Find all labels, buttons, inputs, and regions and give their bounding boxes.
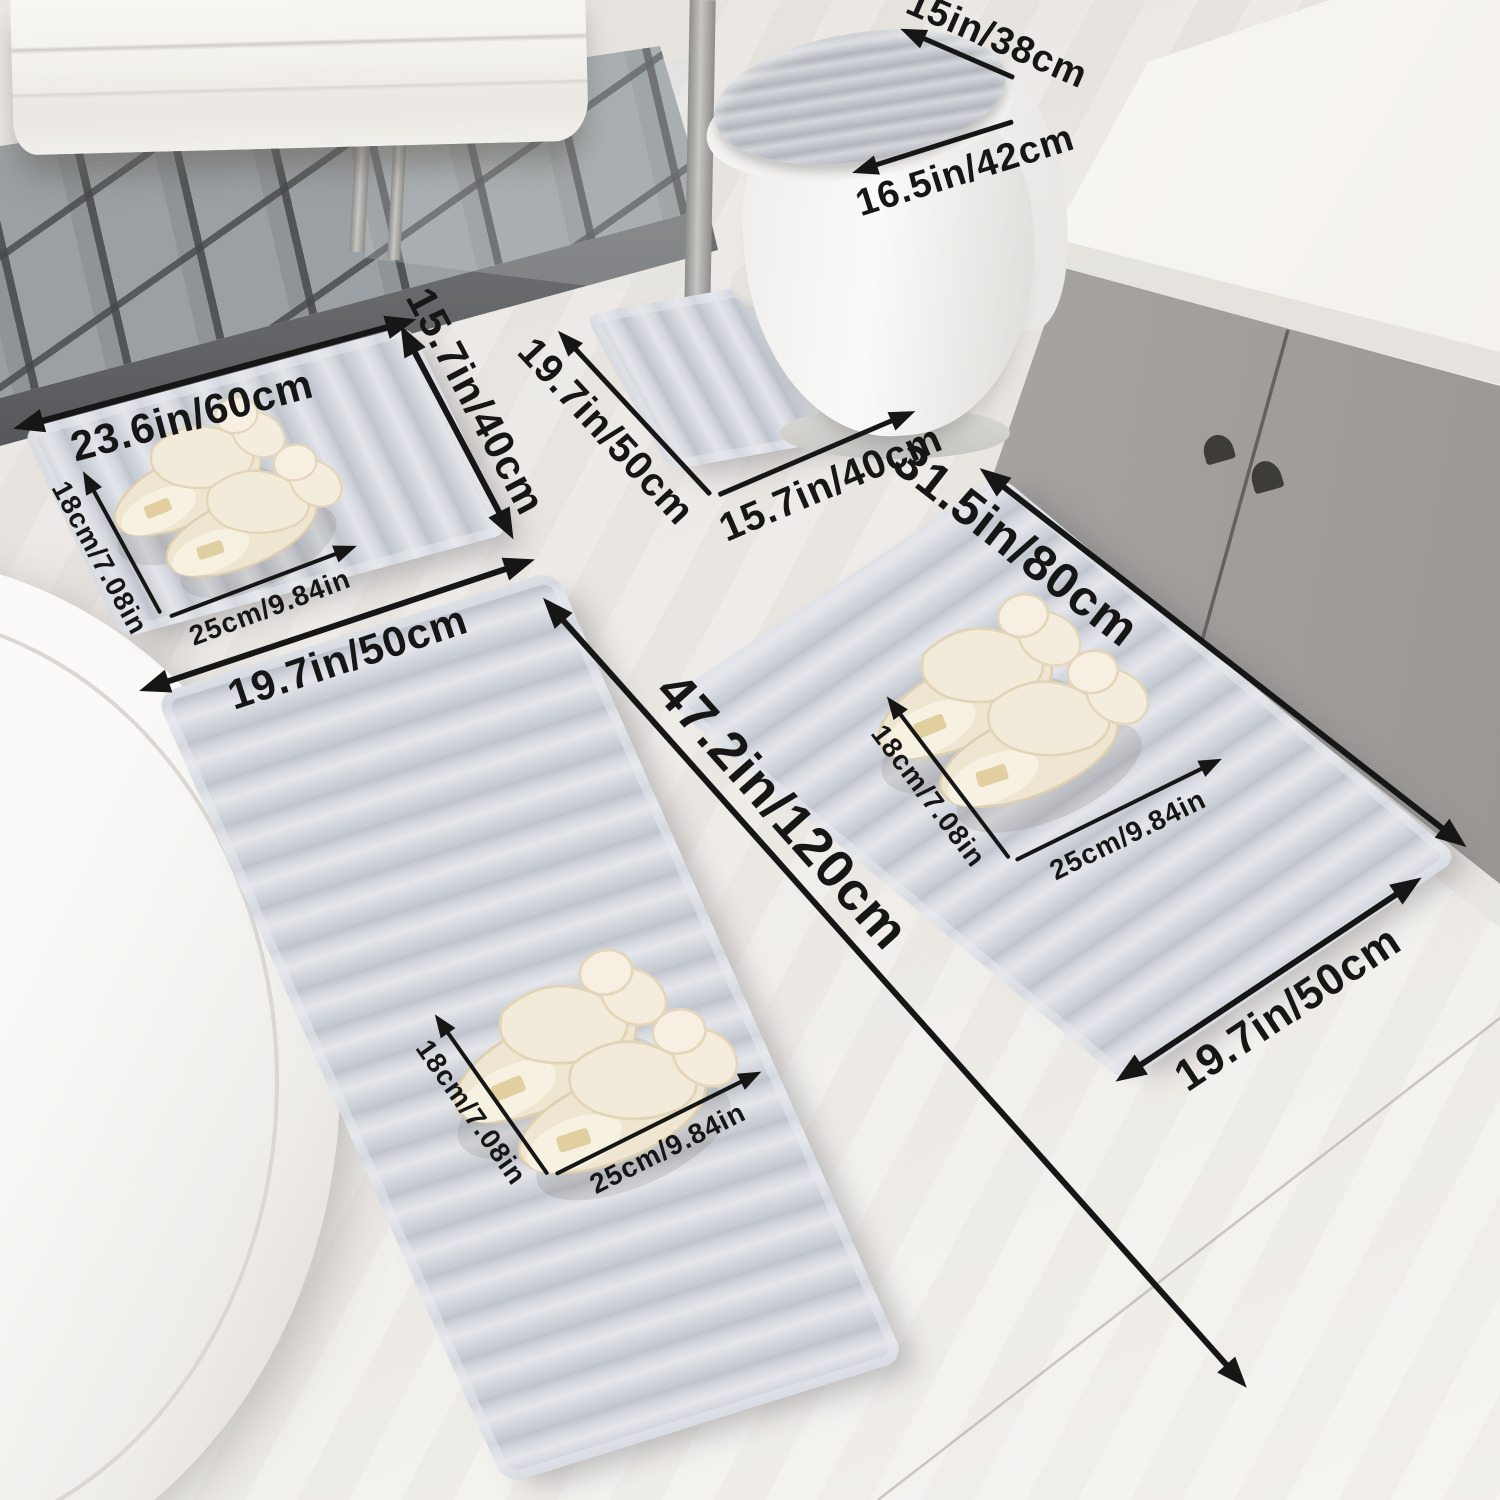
glass-door-frame — [684, 0, 715, 312]
hanging-towel — [10, 0, 589, 155]
bathroom-mat-set-product-photo: 15in/38cm 16.5in/42cm 23.6in/60cm 15.7in… — [0, 0, 1500, 1500]
toilet — [725, 25, 1075, 455]
